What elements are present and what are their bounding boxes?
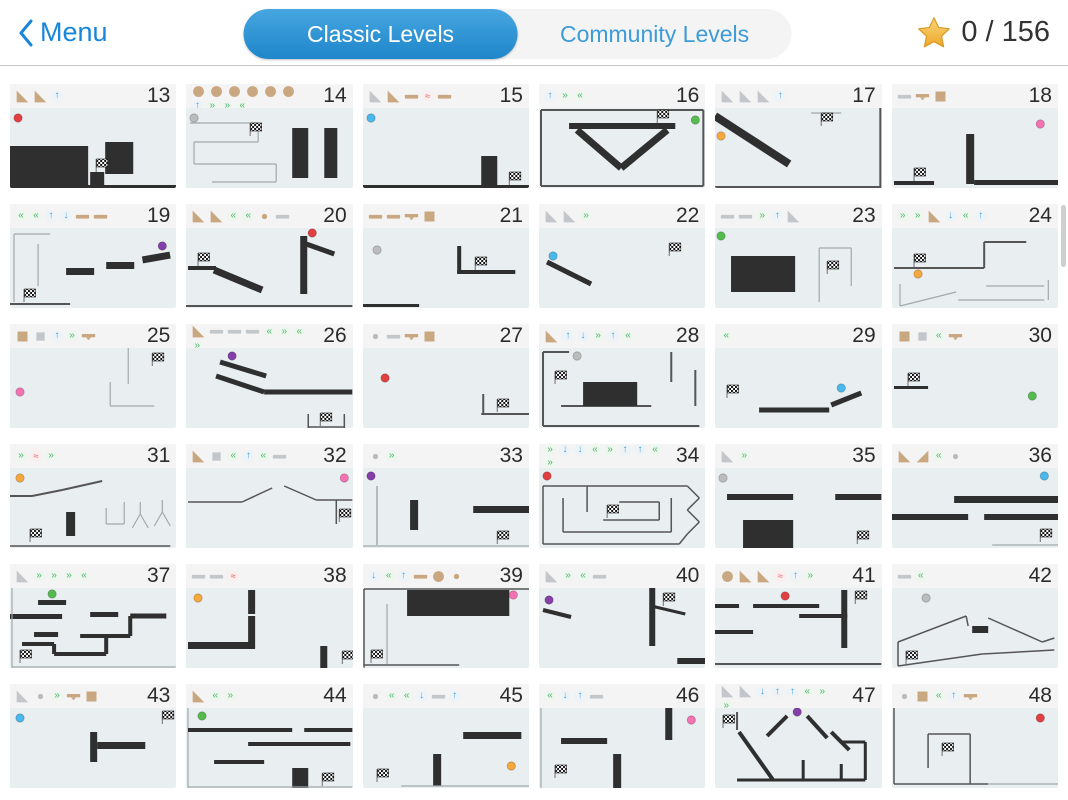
ct-icon (720, 569, 735, 584)
level-number: 18 (1029, 84, 1052, 108)
goal-flag-icon (509, 172, 521, 185)
level-preview (892, 588, 1058, 668)
au-icon: ↑ (398, 570, 410, 582)
goal-flag-icon (822, 113, 834, 126)
level-card-27[interactable]: 27 (363, 324, 529, 428)
bart-icon (413, 569, 428, 584)
barg-icon (897, 569, 912, 584)
sqt-icon (897, 329, 912, 344)
goal-flag-icon (24, 289, 36, 302)
level-number: 36 (1029, 444, 1052, 468)
level-card-32[interactable]: «↑«32 (186, 444, 352, 548)
al-icon: « (933, 330, 945, 342)
level-number: 26 (323, 324, 346, 348)
level-tabs: Classic Levels Community Levels (244, 9, 792, 59)
goal-flag-icon (321, 413, 333, 426)
al-icon: « (720, 330, 732, 342)
barg-icon (738, 209, 753, 224)
level-card-41[interactable]: ≈↑»41 (715, 564, 881, 668)
level-number: 40 (676, 564, 699, 588)
level-card-header: «30 (892, 324, 1058, 348)
level-card-38[interactable]: ≈38 (186, 564, 352, 668)
level-pieces-icons: « (897, 569, 927, 584)
cgs-icon (33, 689, 48, 704)
level-pieces-icons: ↑↓»↑« (544, 329, 634, 344)
level-preview (715, 228, 881, 308)
level-card-header: 18 (892, 84, 1058, 108)
au-icon: ↑ (789, 570, 801, 582)
al-icon: « (386, 690, 398, 702)
tt-icon (33, 89, 48, 104)
ar-icon: » (544, 444, 556, 456)
level-preview (892, 348, 1058, 428)
level-card-36[interactable]: «36 (892, 444, 1058, 548)
level-preview (363, 708, 529, 788)
cts-icon (449, 569, 464, 584)
level-pieces-icons: ««↑↓ (15, 209, 108, 224)
ad-icon: ↓ (416, 690, 428, 702)
level-card-40[interactable]: »«40 (539, 564, 705, 668)
ct-icon (209, 84, 224, 99)
tt-icon (927, 209, 942, 224)
au-icon: ↑ (771, 210, 783, 222)
level-preview (539, 468, 705, 548)
level-preview (892, 108, 1058, 188)
ad-icon: ↓ (945, 210, 957, 222)
level-pieces-icons: « (897, 329, 963, 344)
level-pieces-icons: «« (191, 209, 290, 224)
level-number: 13 (147, 84, 170, 108)
level-preview (363, 228, 529, 308)
level-pieces-icons: «»«» (191, 324, 309, 348)
level-card-34[interactable]: »↓↓«»↑↑«»34 (539, 444, 705, 548)
level-number: 39 (500, 564, 523, 588)
barg-icon (589, 689, 604, 704)
level-card-45[interactable]: ««↓↑45 (363, 684, 529, 788)
level-preview (539, 108, 705, 188)
ar-icon: » (63, 570, 75, 582)
ct-icon (263, 84, 278, 99)
au-icon: ↑ (51, 330, 63, 342)
tt-icon (756, 569, 771, 584)
ar-icon: » (897, 210, 909, 222)
ar-icon: » (48, 570, 60, 582)
level-card-header: »≈»31 (10, 444, 176, 468)
level-preview (715, 348, 881, 428)
tab-classic-levels[interactable]: Classic Levels (244, 9, 518, 59)
level-number: 32 (323, 444, 346, 468)
level-number: 34 (676, 444, 699, 468)
level-card-23[interactable]: »↑23 (715, 204, 881, 308)
tt-icon (738, 569, 753, 584)
ar-icon: » (221, 100, 233, 108)
al-icon: « (544, 690, 556, 702)
ar-icon: » (66, 330, 78, 342)
level-card-17[interactable]: ↑17 (715, 84, 881, 188)
level-card-header: ≈38 (186, 564, 352, 588)
level-number: 37 (147, 564, 170, 588)
level-pieces-icons: » (368, 449, 398, 464)
level-card-header: ↑»25 (10, 324, 176, 348)
sqr-icon: ≈ (422, 90, 434, 102)
level-pieces-icons: ↓↑↑«»» (720, 684, 838, 708)
level-number: 15 (500, 84, 523, 108)
goal-flag-icon (20, 650, 32, 663)
level-preview (186, 468, 352, 548)
level-card-header: ««↑↓19 (10, 204, 176, 228)
tg-icon (738, 684, 753, 699)
ar-icon: » (816, 686, 828, 698)
level-card-28[interactable]: ↑↓»↑«28 (539, 324, 705, 428)
barg-icon (272, 449, 287, 464)
ad-icon: ↓ (574, 444, 586, 456)
goal-flag-icon (914, 168, 926, 181)
level-number: 20 (323, 204, 346, 228)
ar-icon: » (15, 450, 27, 462)
level-preview (186, 108, 352, 188)
ar-icon: » (562, 570, 574, 582)
brkt-icon (915, 89, 930, 104)
level-number: 24 (1029, 204, 1052, 228)
level-card-header: «↑48 (892, 684, 1058, 708)
tg-icon (15, 689, 30, 704)
goal-flag-icon (343, 651, 353, 664)
al-icon: « (801, 686, 813, 698)
level-card-24[interactable]: »»↓«↑24 (892, 204, 1058, 308)
tt-icon (897, 449, 912, 464)
level-preview (186, 708, 352, 788)
level-card-19[interactable]: ««↑↓19 (10, 204, 176, 308)
sqt-icon (15, 329, 30, 344)
level-card-18[interactable]: 18 (892, 84, 1058, 188)
goal-flag-icon (1040, 529, 1052, 542)
al-icon: « (589, 444, 601, 456)
level-number: 35 (852, 444, 875, 468)
tt-icon (386, 89, 401, 104)
level-pieces-icons: ≈↑» (720, 569, 816, 584)
goal-flag-icon (152, 353, 164, 366)
level-preview (10, 708, 176, 788)
level-pieces-icons: »« (544, 569, 607, 584)
level-number: 42 (1029, 564, 1052, 588)
goal-flag-icon (914, 254, 926, 267)
level-pieces-icons: ≈ (191, 569, 239, 584)
level-preview (539, 588, 705, 668)
brkt-icon (404, 329, 419, 344)
level-card-43[interactable]: »43 (10, 684, 176, 788)
level-card-header: »↑23 (715, 204, 881, 228)
level-card-33[interactable]: »33 (363, 444, 529, 548)
sqg-icon (33, 329, 48, 344)
ct-icon (431, 569, 446, 584)
barg-icon (897, 89, 912, 104)
level-card-header: «↑«32 (186, 444, 352, 468)
level-pieces-icons: « (720, 330, 732, 342)
level-card-44[interactable]: «»44 (186, 684, 352, 788)
tg-icon (15, 569, 30, 584)
barg-icon (209, 569, 224, 584)
au-icon: ↑ (948, 690, 960, 702)
al-icon: « (933, 450, 945, 462)
al-icon: « (574, 90, 586, 102)
brkt-icon (948, 329, 963, 344)
goal-flag-icon (475, 257, 487, 270)
level-pieces-icons: ↑ (15, 89, 63, 104)
level-preview (892, 228, 1058, 308)
level-card-header: »»↓«↑24 (892, 204, 1058, 228)
level-pieces-icons: »≈» (15, 450, 57, 462)
barg-icon (191, 569, 206, 584)
barg-icon (431, 689, 446, 704)
level-card-48[interactable]: «↑48 (892, 684, 1058, 788)
sqg-icon (209, 449, 224, 464)
menu-back-button[interactable]: Menu (18, 17, 108, 48)
brkt-icon (81, 329, 96, 344)
level-number: 28 (676, 324, 699, 348)
ad-icon: ↓ (368, 570, 380, 582)
al-icon: « (293, 326, 305, 338)
level-preview (892, 468, 1058, 548)
level-number: 44 (323, 684, 346, 708)
cgs-icon (897, 689, 912, 704)
level-pieces-icons: « (897, 449, 963, 464)
bart-icon (368, 209, 383, 224)
bart-icon (75, 209, 90, 224)
level-number: 27 (500, 324, 523, 348)
bart-icon (386, 209, 401, 224)
level-card-30[interactable]: «30 (892, 324, 1058, 428)
level-card-20[interactable]: ««20 (186, 204, 352, 308)
au-icon: ↑ (771, 686, 783, 698)
level-card-header: «36 (892, 444, 1058, 468)
barg-icon (720, 209, 735, 224)
au-icon: ↑ (786, 686, 798, 698)
level-preview (363, 468, 529, 548)
scrollbar[interactable] (1061, 205, 1066, 267)
goal-flag-icon (669, 243, 681, 256)
level-preview (539, 348, 705, 428)
level-card-15[interactable]: ≈15 (363, 84, 529, 188)
al-icon: « (236, 100, 248, 108)
level-pieces-icons (368, 209, 437, 224)
star-counter: 0 / 156 (916, 15, 1050, 51)
level-card-header: «↓↑46 (539, 684, 705, 708)
tg-icon (368, 89, 383, 104)
tg-icon (720, 684, 735, 699)
barg-icon (592, 569, 607, 584)
level-card-header: «29 (715, 324, 881, 348)
level-card-35[interactable]: »35 (715, 444, 881, 548)
tg-icon (738, 89, 753, 104)
ad-icon: ↓ (577, 330, 589, 342)
level-card-46[interactable]: «↓↑46 (539, 684, 705, 788)
goal-flag-icon (250, 123, 262, 136)
level-card-47[interactable]: ↓↑↑«»»47 (715, 684, 881, 788)
ar-icon: » (45, 450, 57, 462)
level-card-header: ≈↑»41 (715, 564, 881, 588)
barg-icon (245, 324, 260, 339)
level-preview (10, 588, 176, 668)
level-card-header: ↓↑↑«»»47 (715, 684, 881, 708)
tt-icon (191, 449, 206, 464)
ttf-icon (915, 449, 930, 464)
level-number: 38 (323, 564, 346, 588)
level-card-14[interactable]: ↑»»«14 (186, 84, 352, 188)
star-count-label: 0 / 156 (961, 16, 1050, 49)
level-preview (363, 588, 529, 668)
level-pieces-icons: »↑ (720, 209, 801, 224)
level-preview (10, 108, 176, 188)
level-select-screen: Menu Classic Levels Community Levels 0 /… (0, 0, 1068, 800)
level-number: 48 (1029, 684, 1052, 708)
goal-flag-icon (942, 743, 954, 756)
level-pieces-icons: ↓«↑ (368, 569, 464, 584)
level-pieces-icons: ««↓↑ (368, 689, 461, 704)
level-card-header: ↑↓»↑«28 (539, 324, 705, 348)
ar-icon: » (738, 450, 750, 462)
level-pieces-icons (897, 89, 948, 104)
level-number: 22 (676, 204, 699, 228)
level-card-header: ««20 (186, 204, 352, 228)
level-number: 14 (323, 84, 346, 108)
level-card-header: »»»«37 (10, 564, 176, 588)
tg-icon (756, 89, 771, 104)
goal-flag-icon (555, 765, 567, 778)
tt-icon (544, 329, 559, 344)
level-number: 21 (500, 204, 523, 228)
level-card-header: »↓↓«»↑↑«»34 (539, 444, 705, 468)
top-bar: Menu Classic Levels Community Levels 0 /… (0, 0, 1068, 66)
sqt-icon (933, 89, 948, 104)
level-number: 41 (852, 564, 875, 588)
level-pieces-icons: » (15, 689, 99, 704)
goal-flag-icon (723, 715, 735, 728)
al-icon: « (257, 450, 269, 462)
level-preview (715, 708, 881, 788)
goal-flag-icon (198, 253, 210, 266)
level-number: 45 (500, 684, 523, 708)
level-number: 16 (676, 84, 699, 108)
level-card-21[interactable]: 21 (363, 204, 529, 308)
tg-icon (720, 89, 735, 104)
level-pieces-icons: » (544, 209, 592, 224)
al-icon: « (649, 444, 661, 456)
ar-icon: » (206, 100, 218, 108)
level-card-29[interactable]: «29 (715, 324, 881, 428)
level-card-42[interactable]: «42 (892, 564, 1058, 668)
al-icon: « (263, 326, 275, 338)
level-number: 23 (852, 204, 875, 228)
au-icon: ↑ (51, 90, 63, 102)
au-icon: ↑ (607, 330, 619, 342)
au-icon: ↑ (449, 690, 461, 702)
cgs-icon (368, 329, 383, 344)
al-icon: « (933, 690, 945, 702)
goal-flag-icon (497, 399, 509, 412)
al-icon: « (227, 210, 239, 222)
ar-icon: » (278, 326, 290, 338)
al-icon: « (227, 450, 239, 462)
al-icon: « (577, 570, 589, 582)
al-icon: « (209, 690, 221, 702)
level-pieces-icons: »»»« (15, 569, 90, 584)
level-preview (539, 228, 705, 308)
al-icon: « (30, 210, 42, 222)
level-number: 25 (147, 324, 170, 348)
level-number: 43 (147, 684, 170, 708)
level-number: 31 (147, 444, 170, 468)
al-icon: « (960, 210, 972, 222)
level-pieces-icons: ↑»« (544, 90, 586, 102)
level-card-16[interactable]: ↑»«16 (539, 84, 705, 188)
level-number: 47 (852, 684, 875, 708)
barg-icon (275, 209, 290, 224)
ar-icon: » (592, 330, 604, 342)
level-pieces-icons: ↑»»« (191, 84, 309, 108)
level-card-31[interactable]: »≈»31 (10, 444, 176, 548)
sqg-icon (915, 329, 930, 344)
star-icon (916, 15, 952, 51)
level-card-13[interactable]: ↑13 (10, 84, 176, 188)
level-card-22[interactable]: »22 (539, 204, 705, 308)
level-preview (186, 588, 352, 668)
al-icon: « (622, 330, 634, 342)
level-card-26[interactable]: «»«»26 (186, 324, 352, 428)
tg-icon (786, 209, 801, 224)
level-preview (10, 348, 176, 428)
goal-flag-icon (908, 373, 920, 386)
level-pieces-icons: «↑« (191, 449, 287, 464)
al-icon: « (15, 210, 27, 222)
level-card-header: 27 (363, 324, 529, 348)
level-card-25[interactable]: ↑»25 (10, 324, 176, 428)
sqt-icon (422, 329, 437, 344)
goal-flag-icon (497, 531, 509, 544)
level-preview (715, 588, 881, 668)
level-card-39[interactable]: ↓«↑39 (363, 564, 529, 668)
au-icon: ↑ (774, 90, 786, 102)
au-icon: ↑ (242, 450, 254, 462)
level-grid: ↑13↑»»«14≈15↑»«16↑1718««↑↓19««2021»22»↑2… (0, 66, 1068, 788)
level-card-header: «»44 (186, 684, 352, 708)
level-card-header: ≈15 (363, 84, 529, 108)
goal-flag-icon (323, 773, 335, 786)
goal-flag-icon (828, 261, 840, 274)
ar-icon: » (33, 570, 45, 582)
level-pieces-icons: » (720, 449, 750, 464)
au-icon: ↑ (574, 690, 586, 702)
level-pieces-icons: ≈ (368, 89, 452, 104)
level-card-header: 21 (363, 204, 529, 228)
ar-icon: » (756, 210, 768, 222)
level-pieces-icons: »»↓«↑ (897, 209, 987, 224)
level-card-37[interactable]: »»»«37 (10, 564, 176, 668)
ar-icon: » (559, 90, 571, 102)
au-icon: ↑ (191, 100, 203, 108)
goal-flag-icon (906, 651, 918, 664)
bart-icon (404, 89, 419, 104)
bart-icon (93, 209, 108, 224)
brkt-icon (963, 689, 978, 704)
tt-icon (15, 89, 30, 104)
sqr-icon: ≈ (774, 570, 786, 582)
sqr-icon: ≈ (227, 570, 239, 582)
level-card-header: ↑»«16 (539, 84, 705, 108)
level-preview (10, 468, 176, 548)
goal-flag-icon (858, 531, 870, 544)
tab-community-levels[interactable]: Community Levels (518, 9, 792, 59)
level-preview (539, 708, 705, 788)
